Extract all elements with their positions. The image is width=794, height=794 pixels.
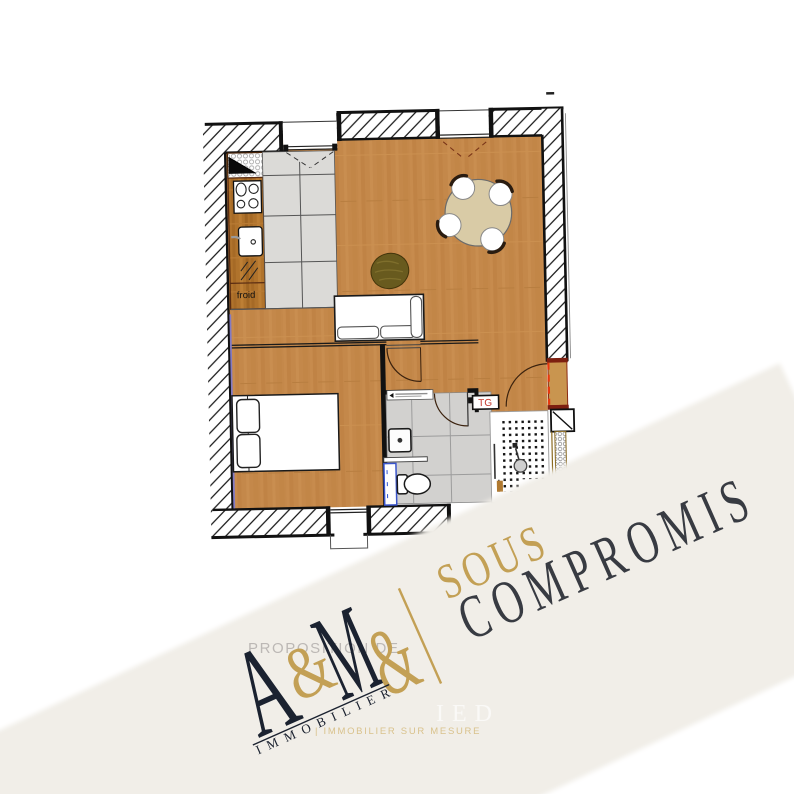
svg-text:TG: TG xyxy=(478,398,492,409)
svg-text:froid: froid xyxy=(237,290,256,301)
svg-text:IED: IED xyxy=(436,701,500,727)
svg-text:| IMMOBILIER SUR MESURE: | IMMOBILIER SUR MESURE xyxy=(315,726,481,737)
